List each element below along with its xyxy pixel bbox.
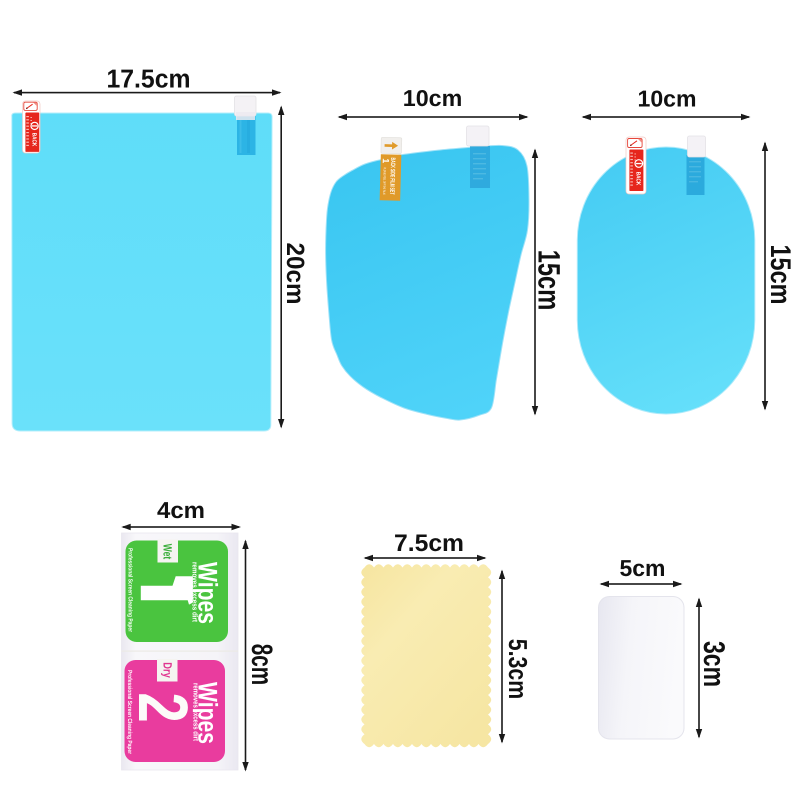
svg-text:BACK SIDE FILM SET: BACK SIDE FILM SET [388, 157, 396, 194]
svg-text:Wet: Wet [161, 544, 175, 560]
svg-text:Dry: Dry [161, 662, 175, 678]
svg-text:PLEASE PEEL OFF THE FILM: PLEASE PEEL OFF THE FILM [382, 167, 387, 194]
svg-text:3cm: 3cm [697, 641, 730, 687]
svg-text:20cm: 20cm [281, 243, 309, 305]
svg-text:Professional Screen Cleaning P: Professional Screen Cleaning Paper [127, 548, 134, 633]
svg-text:15cm: 15cm [532, 250, 567, 311]
svg-text:5.3cm: 5.3cm [503, 639, 533, 700]
svg-text:BACK: BACK [31, 133, 38, 147]
svg-text:Wipes: Wipes [193, 562, 223, 624]
svg-text:BACK: BACK [635, 172, 642, 186]
svg-text:8cm: 8cm [245, 644, 278, 686]
svg-text:Wipes: Wipes [193, 682, 223, 744]
svg-text:7.5cm: 7.5cm [394, 530, 464, 557]
svg-text:10cm: 10cm [403, 85, 463, 111]
svg-text:5cm: 5cm [620, 555, 666, 581]
svg-text:2: 2 [124, 692, 202, 722]
svg-text:10cm: 10cm [638, 86, 697, 112]
svg-text:17.5cm: 17.5cm [107, 64, 191, 94]
svg-text:4cm: 4cm [157, 497, 205, 523]
svg-text:15cm: 15cm [764, 245, 796, 305]
